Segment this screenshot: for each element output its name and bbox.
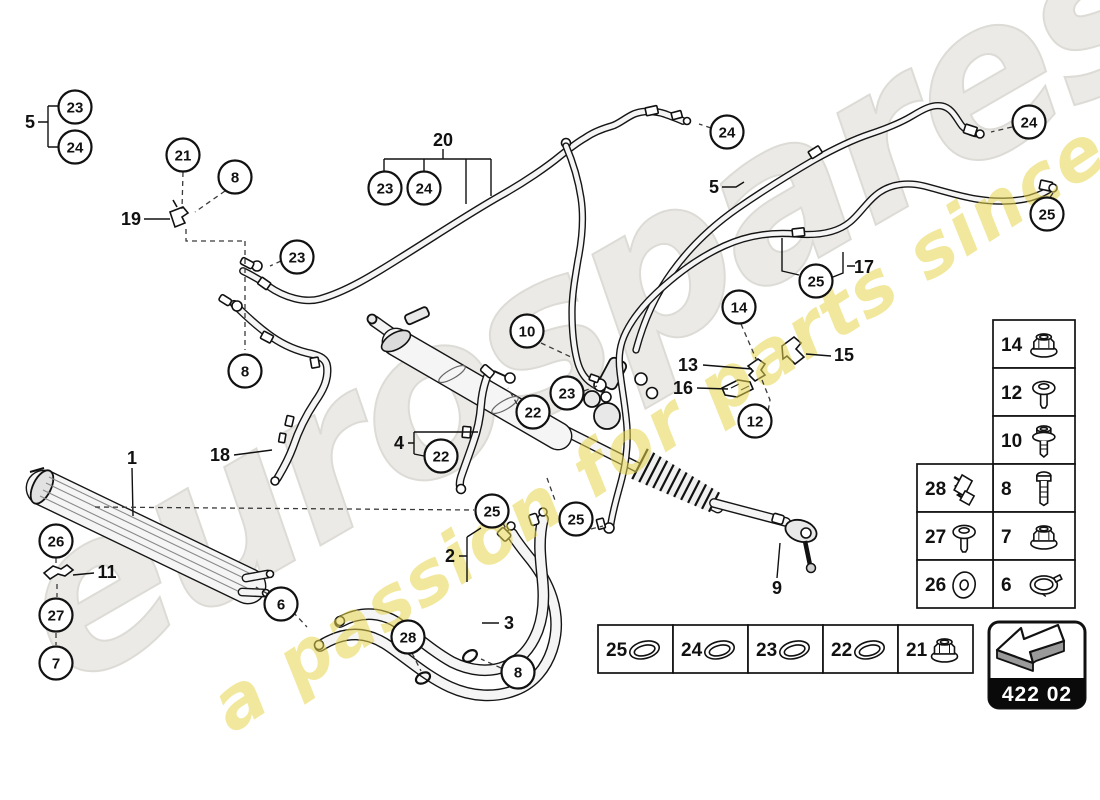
cell-part-number: 8: [1001, 479, 1012, 500]
cell-part-number: 7: [1001, 527, 1012, 548]
callout-24: 24: [59, 131, 92, 164]
part-label-18: 18: [210, 445, 230, 465]
callout-23: 23: [281, 241, 314, 274]
fastener-cell-24: 24: [673, 625, 748, 673]
fastener-cell-21: 21: [898, 625, 973, 673]
cell-part-number: 6: [1001, 575, 1012, 596]
callout-number: 10: [519, 324, 536, 341]
callout-number: 25: [568, 512, 585, 529]
callout-21: 21: [167, 139, 200, 172]
cell-part-number: 10: [1001, 431, 1022, 452]
callout-number: 26: [48, 534, 65, 551]
callout-number: 22: [433, 449, 450, 466]
callout-23: 23: [369, 172, 402, 205]
part-code-text: 422 02: [1002, 683, 1072, 706]
cell-part-number: 28: [925, 479, 946, 500]
watermark-brand: eurospares: [0, 0, 1100, 733]
callout-number: 28: [400, 630, 417, 647]
callout-number: 25: [808, 274, 825, 291]
callout-number: 12: [747, 414, 764, 431]
callout-23: 23: [59, 91, 92, 124]
callout-28: 28: [392, 621, 425, 654]
callout-12: 12: [739, 405, 772, 438]
part-label-3: 3: [504, 613, 514, 633]
callout-number: 24: [416, 181, 433, 198]
callout-23: 23: [551, 377, 584, 410]
fastener-cell-12: 12: [993, 368, 1075, 416]
part-label-19: 19: [121, 209, 141, 229]
fastener-cell-14: 14: [993, 320, 1075, 368]
callout-number: 25: [1039, 207, 1056, 224]
callout-number: 14: [731, 300, 748, 317]
fastener-cell-23: 23: [748, 625, 823, 673]
callout-number: 24: [1021, 115, 1038, 132]
cell-part-number: 27: [925, 527, 946, 548]
part-label-5: 5: [25, 112, 35, 132]
part-label-1: 1: [127, 448, 137, 468]
cell-part-number: 21: [906, 640, 928, 661]
callout-27: 27: [40, 599, 73, 632]
callout-number: 23: [67, 100, 84, 117]
callout-number: 22: [525, 405, 542, 422]
fastener-cell-8: 8: [993, 464, 1075, 512]
fastener-cell-6: 6: [993, 560, 1075, 608]
callout-6: 6: [265, 588, 298, 621]
cell-part-number: 24: [681, 640, 703, 661]
callout-number: 6: [277, 597, 285, 614]
callout-number: 23: [377, 181, 394, 198]
callout-14: 14: [723, 291, 756, 324]
callout-number: 24: [719, 125, 736, 142]
callout-8: 8: [502, 656, 535, 689]
fastener-cell-7: 7: [993, 512, 1075, 560]
fastener-cell-22: 22: [823, 625, 898, 673]
clip-19: [170, 200, 188, 227]
callout-number: 27: [48, 608, 65, 625]
part-label-17: 17: [854, 257, 874, 277]
part-code-box: 422 02: [989, 622, 1085, 708]
callout-25: 25: [1031, 198, 1064, 231]
fastener-cell-27: 27: [917, 512, 993, 560]
callout-25: 25: [800, 265, 833, 298]
callout-8: 8: [229, 355, 262, 388]
cell-part-number: 25: [606, 640, 628, 661]
callout-24: 24: [408, 172, 441, 205]
callout-7: 7: [40, 647, 73, 680]
callout-26: 26: [40, 525, 73, 558]
callout-number: 8: [241, 364, 249, 381]
callout-25: 25: [560, 503, 593, 536]
parts-diagram-page: eurospares: [0, 0, 1100, 800]
callout-24: 24: [711, 116, 744, 149]
part-label-11: 11: [97, 562, 116, 582]
callout-number: 25: [484, 504, 501, 521]
callout-number: 8: [514, 665, 522, 682]
part-label-9: 9: [772, 578, 782, 598]
part-label-15: 15: [834, 345, 854, 365]
cell-part-number: 23: [756, 640, 777, 661]
callout-24: 24: [1013, 106, 1046, 139]
callout-8: 8: [219, 161, 252, 194]
callout-22: 22: [425, 440, 458, 473]
fastener-cell-10: 10: [993, 416, 1075, 464]
callout-10: 10: [511, 315, 544, 348]
cell-part-number: 26: [925, 575, 946, 596]
callout-number: 24: [67, 140, 84, 157]
fastener-cell-26: 26: [917, 560, 993, 608]
callout-number: 21: [175, 148, 192, 165]
fastener-cell-28: 28: [917, 464, 993, 512]
part-label-4: 4: [394, 433, 404, 453]
cell-part-number: 14: [1001, 335, 1023, 356]
fastener-cell-25: 25: [598, 625, 673, 673]
cell-part-number: 22: [831, 640, 852, 661]
callout-number: 23: [289, 250, 306, 267]
part-label-2: 2: [445, 546, 455, 566]
callout-number: 8: [231, 170, 239, 187]
part-label-5: 5: [709, 177, 719, 197]
watermark-brand-text: eurospares: [0, 0, 1100, 733]
part-label-20: 20: [433, 130, 453, 150]
callout-25: 25: [476, 495, 509, 528]
callout-number: 7: [52, 656, 60, 673]
part-label-16: 16: [673, 378, 693, 398]
cell-part-number: 12: [1001, 383, 1022, 404]
part-label-13: 13: [678, 355, 698, 375]
callout-number: 23: [559, 386, 576, 403]
callout-22: 22: [517, 396, 550, 429]
